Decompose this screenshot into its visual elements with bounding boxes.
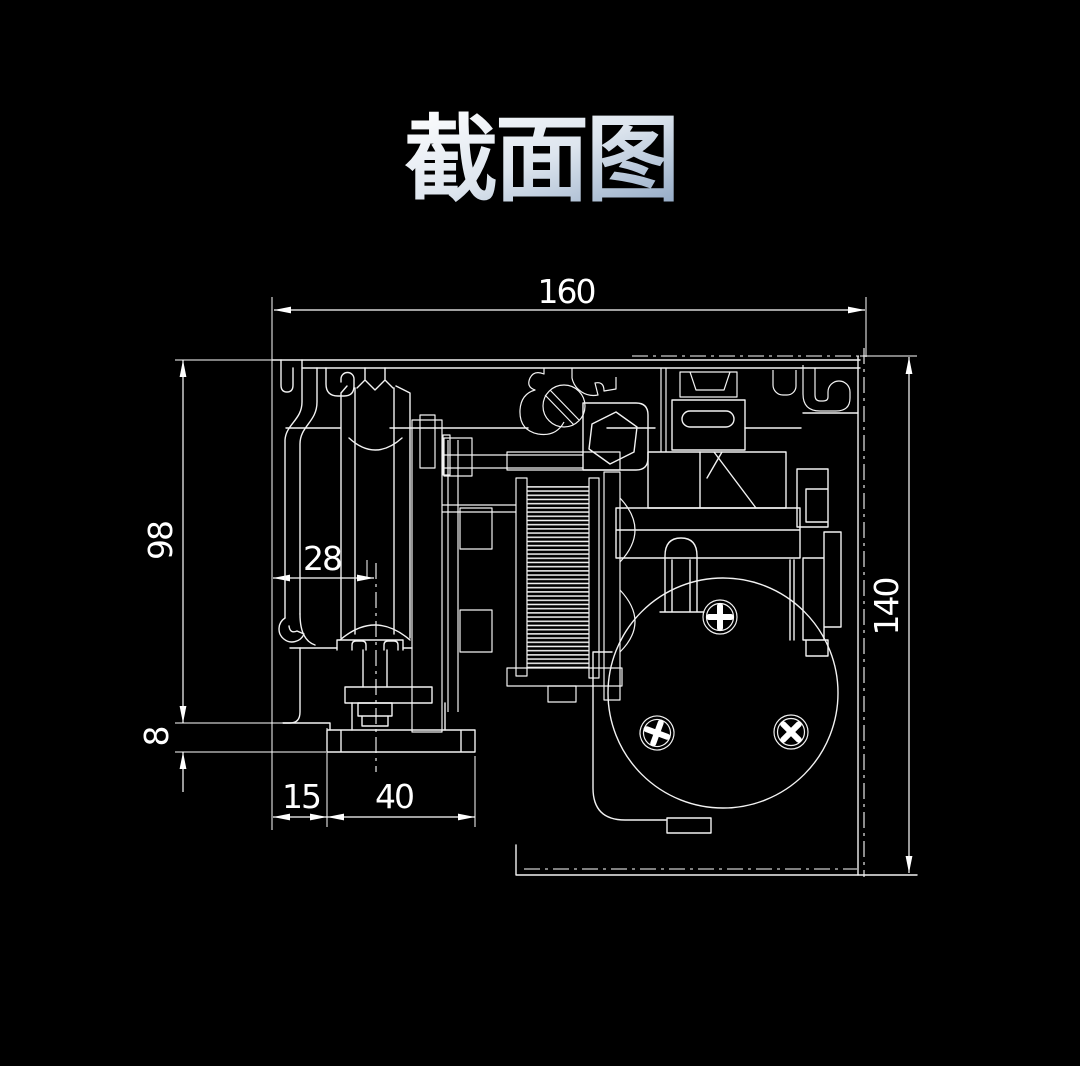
dim-label-right-height: 140 <box>867 579 906 636</box>
dim-label-top-width: 160 <box>538 272 595 311</box>
dim-label-foot-offset: 15 <box>282 777 320 816</box>
cross-section-drawing: 截面图 160 98 <box>0 0 1080 1066</box>
dim-label-left-height: 98 <box>141 522 180 560</box>
screw-top <box>703 600 737 634</box>
dim-label-roller-offset: 28 <box>303 539 341 578</box>
page-title: 截面图 <box>404 107 677 212</box>
cross-section-page: 截面图 160 98 <box>0 0 1080 1066</box>
dim-label-foot-width: 40 <box>375 777 413 816</box>
dim-label-lip-height: 8 <box>137 728 176 747</box>
